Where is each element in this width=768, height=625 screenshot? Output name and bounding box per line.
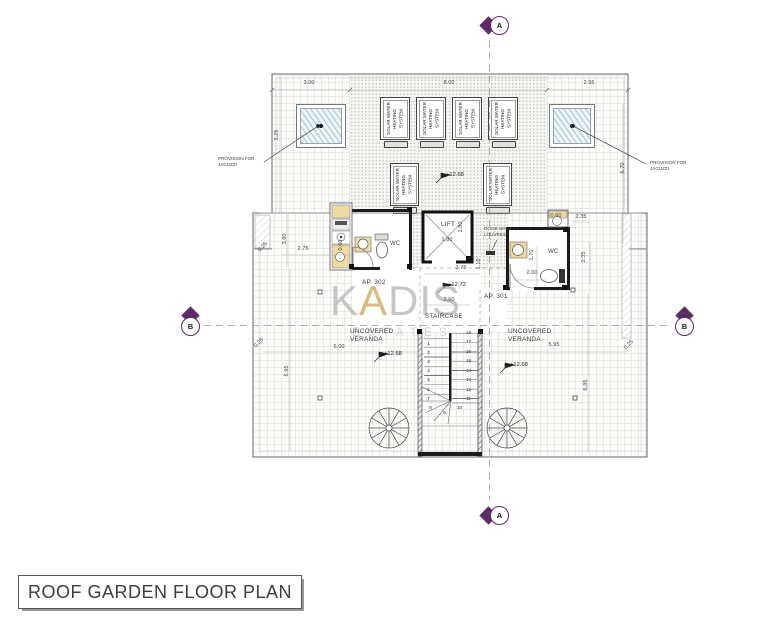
jacuzzi-note-left: PROVISION FOR JACUZZI [218, 156, 270, 167]
dim-top-right-bay: 2.95 [578, 80, 600, 86]
section-marker-b-right: B [670, 308, 704, 342]
dim-veranda-right-depth: 6.95 [583, 374, 589, 396]
dim-right-room-top: 2.35 [570, 214, 592, 220]
dim-right-bay-depth: 6.70 [620, 157, 626, 179]
dim-right-wc-width: 2.00 [521, 270, 543, 276]
dim-landing-depth: 2.50 [438, 297, 460, 303]
stair-flight-right [452, 333, 478, 404]
veranda-left-label: UNCOVERED VERANDA [350, 328, 393, 344]
round-feature-right [487, 408, 527, 448]
dim-veranda-left-width: 6.00 [328, 344, 350, 350]
leader-lines [264, 124, 646, 164]
stair-step-number: 10 [455, 405, 464, 410]
ap301-label: AP. 301 [484, 293, 508, 301]
plan-linework [0, 0, 768, 625]
dim-top-middle-bay: 8.00 [438, 80, 460, 86]
floor-plan-canvas: SOLAR WATER HEATING SYSTEM SOLAR WATER H… [0, 0, 768, 625]
section-marker-a-top: A [481, 11, 515, 45]
dim-right-cabinet: 0.60 [545, 213, 567, 219]
drawing-title: ROOF GARDEN FLOOR PLAN [18, 575, 302, 609]
staircase-label: STAIRCASE [425, 314, 463, 322]
dim-lift-depth: 1.80 [458, 216, 464, 238]
level-solar-deck: +12.68 [446, 172, 464, 178]
lift-label: LIFT [436, 221, 460, 229]
dim-lift-width: 1.80 [436, 237, 458, 243]
dim-right-wc-depth: 1.70 [529, 244, 535, 266]
stair-step-number: 9 [440, 410, 449, 415]
dim-right-room-side: 2.35 [581, 246, 587, 268]
level-veranda-left: +12.68 [384, 351, 402, 357]
dim-left-bay-depth: 5.25 [274, 124, 280, 146]
parapet-hatch-right [622, 214, 631, 338]
stair-step-number: 8 [426, 405, 435, 410]
jacuzzi-note-right: PROVISION FOR JACUZZI [650, 160, 702, 171]
level-landing: +12.72 [448, 282, 466, 288]
stair-flight-left [424, 338, 449, 400]
dim-veranda-right-width: 5.95 [543, 342, 565, 348]
dim-left-room-depth: 3.80 [282, 228, 288, 250]
wc-right-label: WC [548, 249, 558, 257]
dim-left-cabinet: 0.60 [338, 234, 344, 256]
round-feature-left [369, 408, 409, 448]
section-marker-a-bottom: A [481, 501, 515, 535]
ap302-label: AP. 302 [362, 279, 386, 287]
louvre-note: DOOR WITH LOUVRES [484, 226, 514, 237]
dim-core-offset: 1.10 [476, 253, 482, 275]
dim-top-left-bay: 3.00 [298, 80, 320, 86]
dim-veranda-left-depth: 6.95 [284, 360, 290, 382]
wc-right-walls [506, 210, 570, 291]
section-marker-b-left: B [176, 308, 210, 342]
section-lines [204, 40, 668, 500]
wc-left-label: WC [390, 241, 400, 249]
level-veranda-right: +12.68 [510, 362, 528, 368]
dim-core-width: 3.75 [450, 265, 472, 271]
dim-left-room-width: 2.75 [292, 246, 314, 252]
